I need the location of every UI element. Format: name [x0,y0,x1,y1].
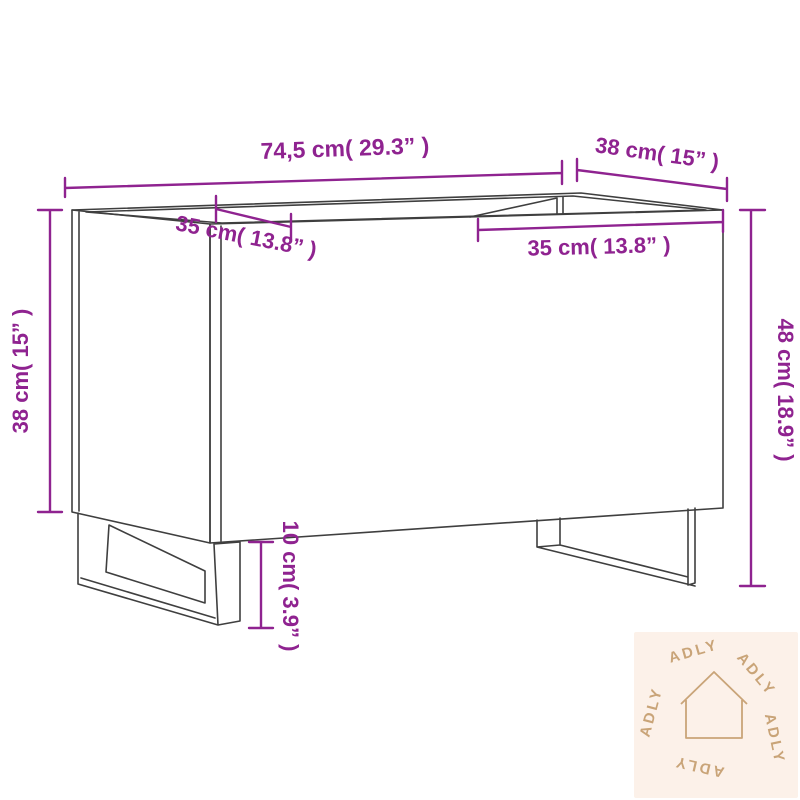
body-height-label: 38 cm( 15” ) [8,309,33,434]
total-height-label: 48 cm( 18.9” ) [773,318,798,461]
cabinet-right-leg [537,508,695,586]
dimension-depth: 38 cm( 15” ) [577,132,727,201]
dimension-line [65,161,562,197]
furniture-dimension-diagram: ADLY ADLY ADLY ADLY ADLY [0,0,800,800]
cabinet-left-leg [78,513,240,625]
dimension-body-height: 38 cm( 15” ) [8,210,62,512]
dimension-total-height: 48 cm( 18.9” ) [740,210,798,586]
dimension-line [249,542,273,628]
diagram-page: ADLY ADLY ADLY ADLY ADLY [0,0,800,800]
cabinet-front-panel [210,210,723,543]
overall-width-label: 74,5 cm( 29.3” ) [260,132,430,164]
left-compartment-label: 35 cm( 13.8” ) [174,210,319,262]
right-compartment-label: 35 cm( 13.8” ) [527,232,671,261]
dimension-line [740,210,765,586]
dimension-right-compartment: 35 cm( 13.8” ) [478,210,723,261]
leg-height-label: 10 cm( 3.9” ) [278,521,303,652]
cabinet-side-panel [72,210,210,543]
dimension-line [38,210,62,512]
watermark: ADLY ADLY ADLY ADLY ADLY [634,632,798,798]
depth-label: 38 cm( 15” ) [594,132,721,174]
dimension-overall-width: 74,5 cm( 29.3” ) [65,132,562,197]
